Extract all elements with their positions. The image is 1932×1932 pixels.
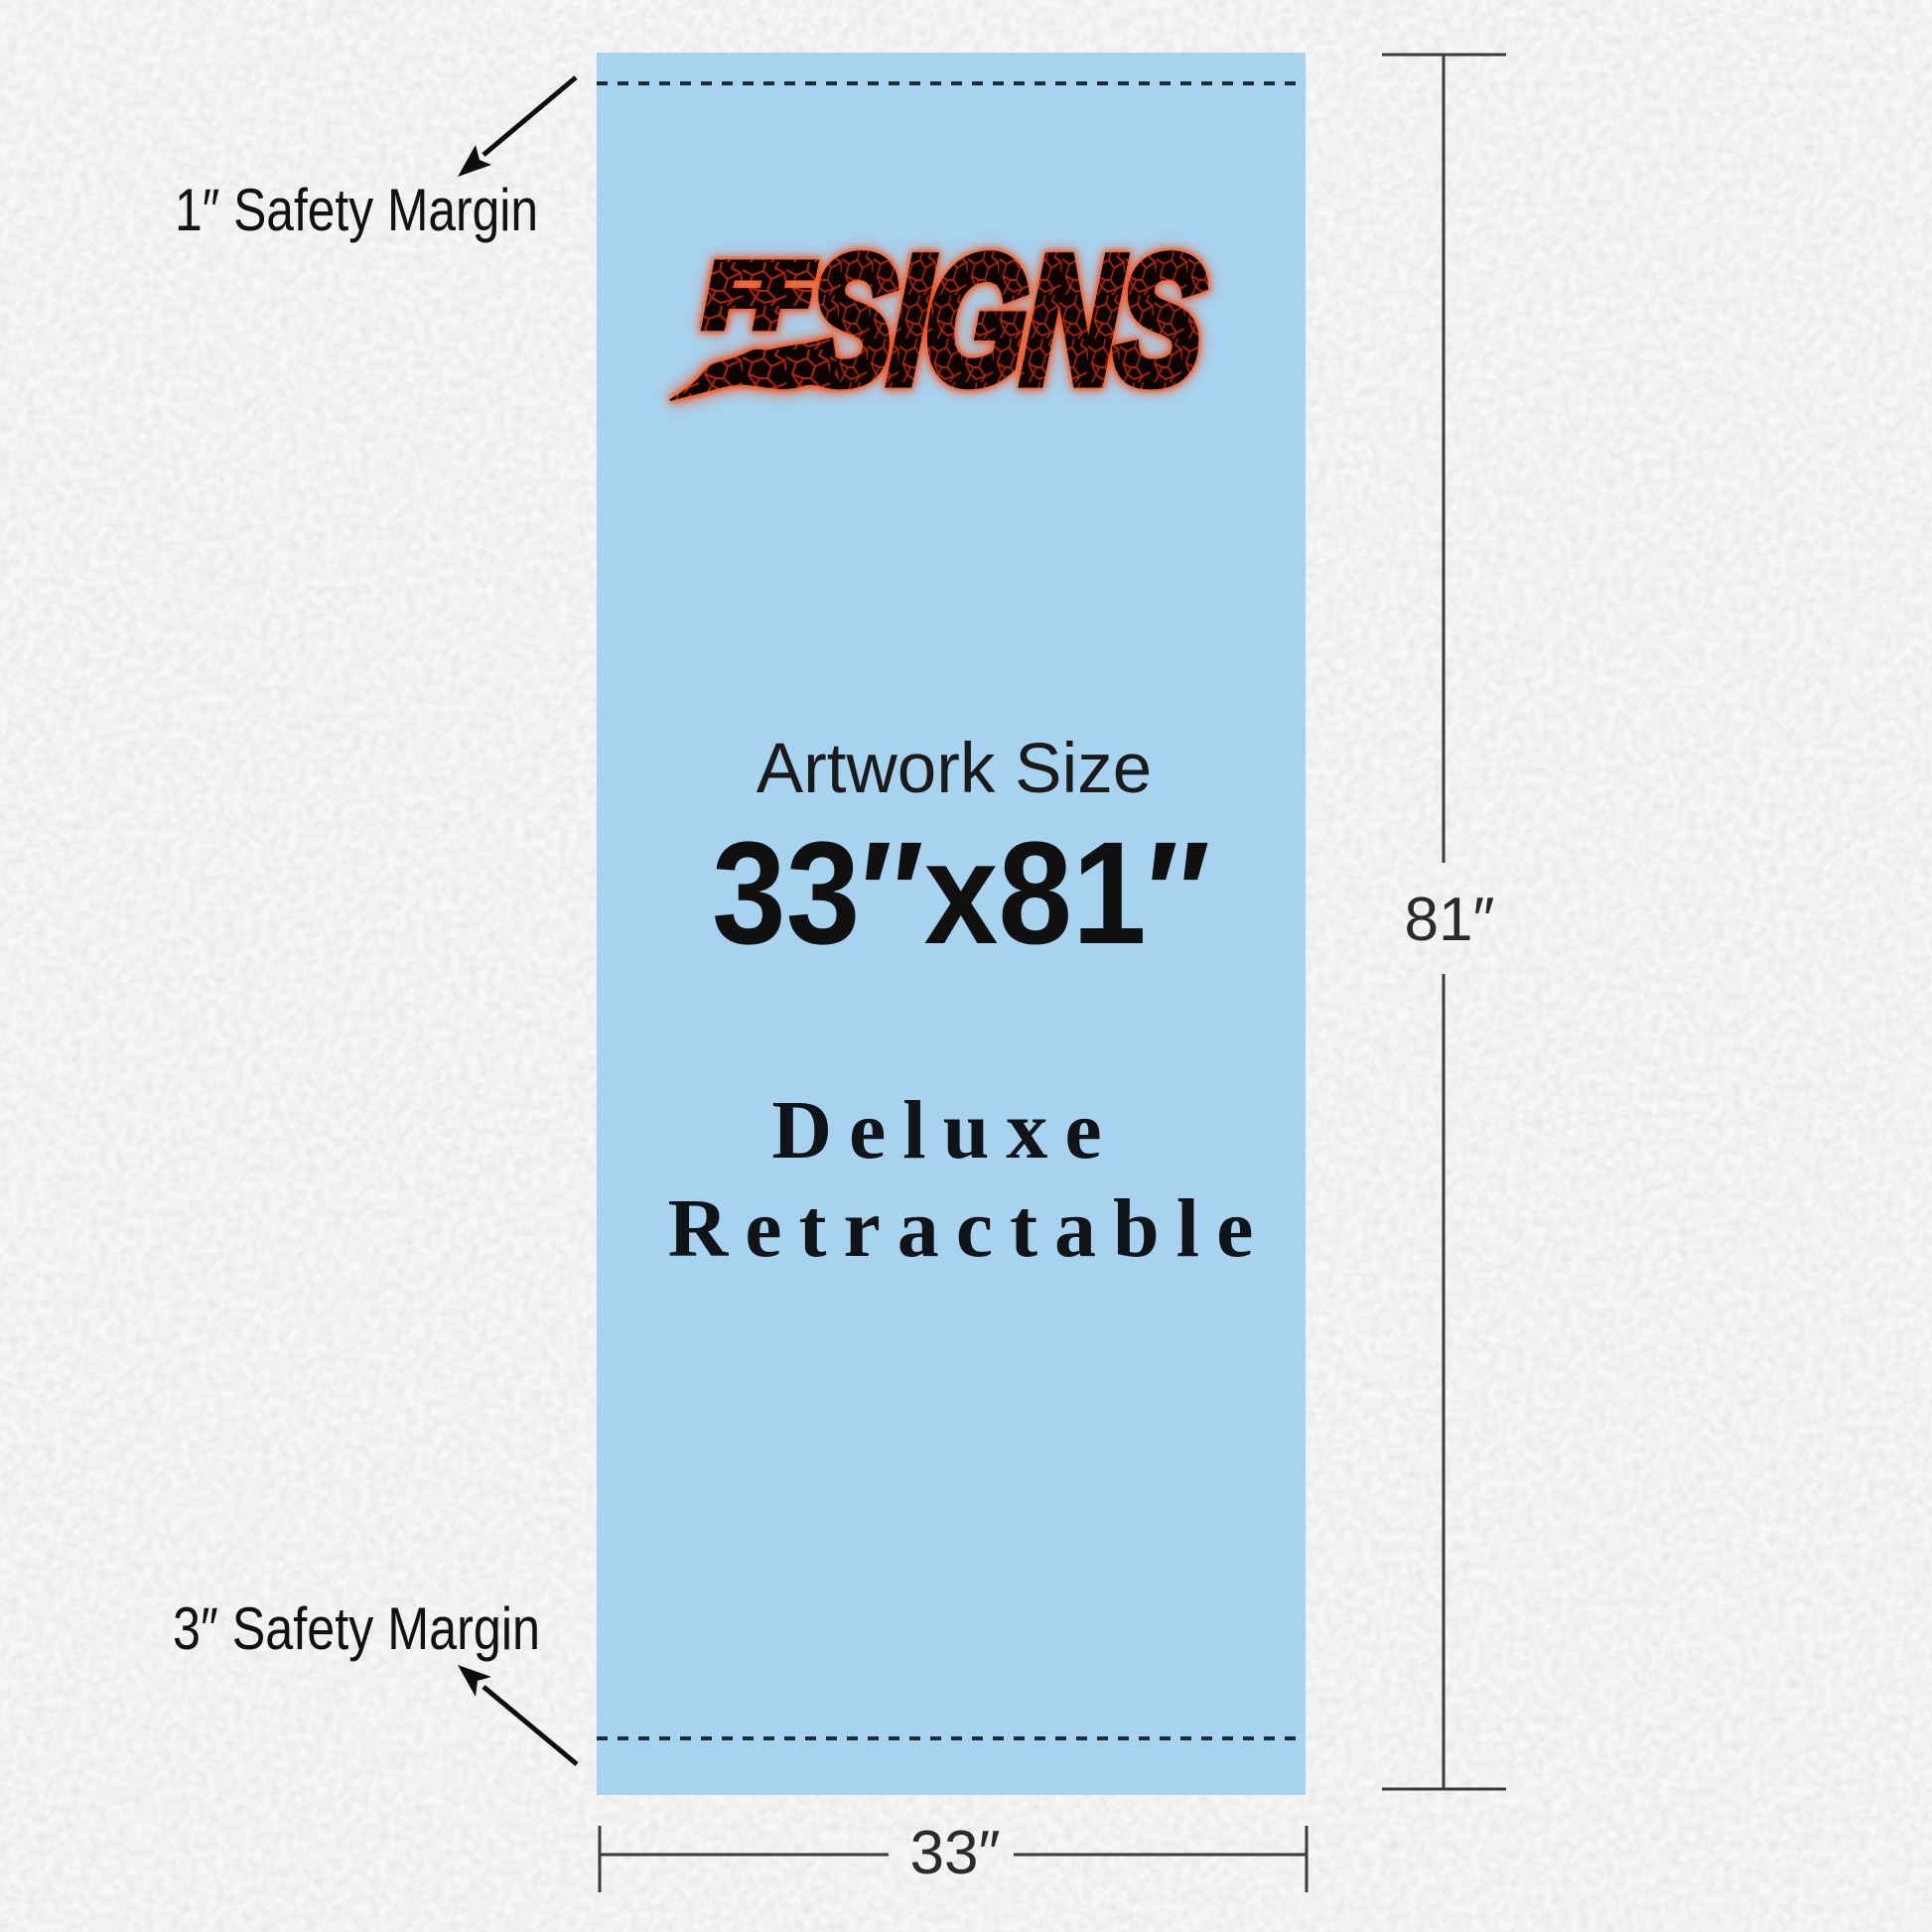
svg-text:3″ Safety Margin: 3″ Safety Margin: [173, 1595, 540, 1662]
svg-text:33″x81″: 33″x81″: [712, 812, 1210, 975]
svg-text:33″: 33″: [910, 1819, 1001, 1887]
svg-text:FF: FF: [706, 246, 813, 345]
svg-text:Artwork Size: Artwork Size: [757, 730, 1152, 808]
svg-text:Retractable: Retractable: [668, 1182, 1271, 1275]
svg-text:1″ Safety Margin: 1″ Safety Margin: [175, 177, 538, 243]
svg-text:Deluxe: Deluxe: [771, 1084, 1118, 1176]
svg-text:81″: 81″: [1405, 886, 1495, 954]
svg-text:SIGNS: SIGNS: [801, 218, 1209, 421]
